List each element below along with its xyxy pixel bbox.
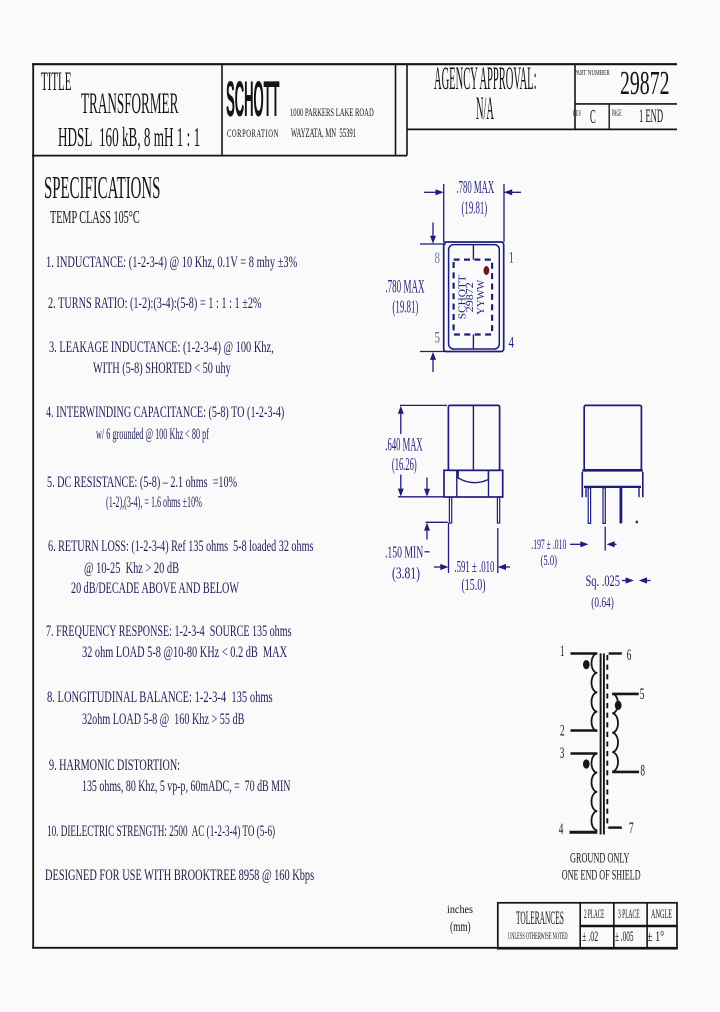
svg-text:(0.64): (0.64) <box>591 595 614 611</box>
svg-text:Sq. .025: Sq. .025 <box>586 573 621 590</box>
svg-text:(3.81): (3.81) <box>392 564 420 583</box>
svg-text:(19.81): (19.81) <box>462 198 488 219</box>
svg-text:.591 ± .010: .591 ± .010 <box>454 557 494 576</box>
svg-text:(16.26): (16.26) <box>392 454 417 475</box>
svg-text:5: 5 <box>435 330 441 347</box>
svg-text:YYWW: YYWW <box>476 280 487 315</box>
svg-text:.197 ± .010: .197 ± .010 <box>531 537 566 553</box>
svg-text:4: 4 <box>559 821 564 838</box>
svg-text:ONE END OF SHIELD: ONE END OF SHIELD <box>562 868 641 884</box>
svg-text:.780 MAX: .780 MAX <box>385 277 424 298</box>
svg-text:(5.0): (5.0) <box>541 553 558 569</box>
svg-text:.150 MIN: .150 MIN <box>385 543 423 562</box>
svg-text:GROUND ONLY: GROUND ONLY <box>570 850 630 866</box>
svg-text:3: 3 <box>560 745 565 762</box>
svg-text:6: 6 <box>627 647 632 664</box>
svg-text:8: 8 <box>435 250 441 267</box>
svg-text:2: 2 <box>560 722 565 739</box>
svg-text:29872: 29872 <box>465 282 476 312</box>
svg-text:.780 MAX: .780 MAX <box>457 177 495 197</box>
svg-text:7: 7 <box>629 820 634 837</box>
svg-text:5: 5 <box>640 686 645 703</box>
svg-text:8: 8 <box>640 763 645 780</box>
svg-text:1: 1 <box>560 643 564 660</box>
svg-text:1: 1 <box>509 250 514 267</box>
svg-text:4: 4 <box>509 335 515 352</box>
svg-text:(15.0): (15.0) <box>462 575 486 594</box>
svg-text:(19.81): (19.81) <box>392 297 418 318</box>
svg-text:.640 MAX: .640 MAX <box>385 435 422 456</box>
